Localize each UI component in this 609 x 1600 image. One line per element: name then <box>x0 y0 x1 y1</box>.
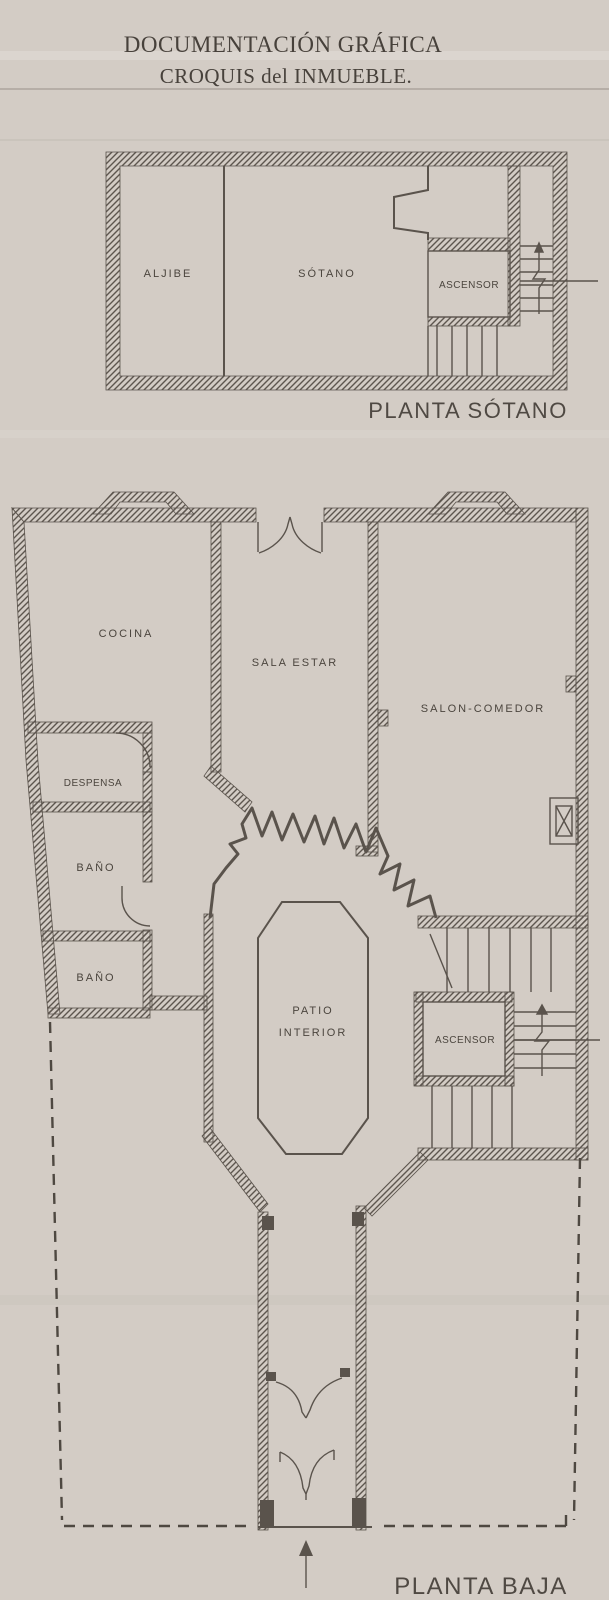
room-label-patio-line2: INTERIOR <box>279 1027 348 1039</box>
plan-caption-sotano: PLANTA SÓTANO <box>368 398 568 423</box>
plan-caption-baja: PLANTA BAJA <box>394 1573 567 1600</box>
room-label-bano-2: BAÑO <box>76 971 115 984</box>
room-label-ascensor-baja: ASCENSOR <box>435 1035 495 1046</box>
document-title-line2: CROQUIS del INMUEBLE. <box>160 64 413 88</box>
room-label-sala-estar: SALA ESTAR <box>252 657 338 669</box>
croquis-drawing: DOCUMENTACIÓN GRÁFICA CROQUIS del INMUEB… <box>0 0 609 1600</box>
room-label-patio-line1: PATIO <box>292 1005 333 1017</box>
basement-stair-wall <box>508 166 520 326</box>
room-label-ascensor-sotano: ASCENSOR <box>439 280 499 291</box>
room-label-sotano: SÓTANO <box>298 267 356 280</box>
room-label-despensa: DESPENSA <box>64 778 122 789</box>
room-label-cocina: COCINA <box>99 628 154 640</box>
room-label-salon-comedor: SALON-COMEDOR <box>421 703 545 715</box>
room-label-bano-1: BAÑO <box>76 861 115 874</box>
room-label-aljibe: ALJIBE <box>144 268 193 280</box>
scanned-floorplan-page: DOCUMENTACIÓN GRÁFICA CROQUIS del INMUEB… <box>0 0 609 1600</box>
basement-lift-top-wall <box>428 238 510 251</box>
basement-lift-bottom-wall <box>428 317 510 326</box>
document-title-line1: DOCUMENTACIÓN GRÁFICA <box>124 31 443 57</box>
